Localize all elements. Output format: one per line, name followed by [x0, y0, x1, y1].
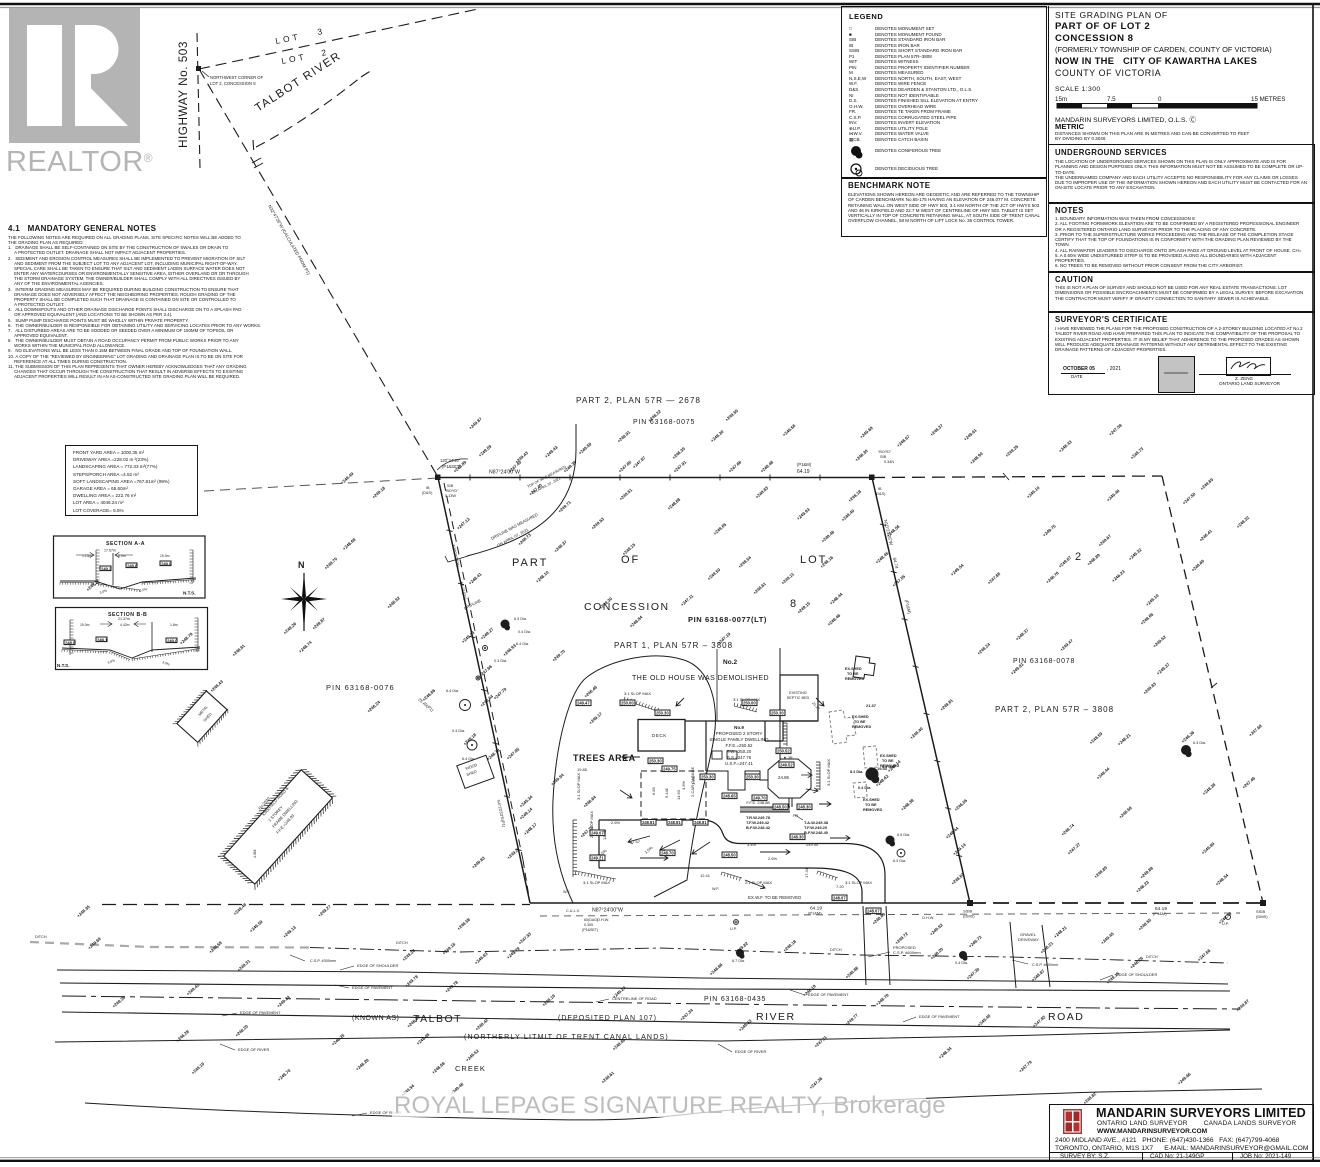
svg-text:+249.48: +249.48 — [977, 1013, 992, 1028]
svg-text:+249.59: +249.59 — [249, 919, 264, 934]
svg-text:6.9 Dia.: 6.9 Dia. — [897, 833, 910, 837]
svg-text:21.37: 21.37 — [811, 701, 820, 711]
svg-text:249.70: 249.70 — [753, 796, 766, 801]
svg-text:1.0%: 1.0% — [643, 845, 654, 855]
svg-text:249.9: 249.9 — [161, 562, 172, 567]
svg-text:250.30: 250.30 — [649, 759, 662, 764]
svg-text:+249.87: +249.87 — [311, 616, 326, 631]
svg-text:+249.88: +249.88 — [1139, 865, 1154, 880]
svg-text:+248.32: +248.32 — [1235, 515, 1250, 530]
svg-text:EDGE OF SHOULDER: EDGE OF SHOULDER — [357, 963, 398, 968]
svg-text:+249.87: +249.87 — [1057, 554, 1072, 569]
svg-text:+249.45: +249.45 — [1100, 931, 1115, 946]
svg-text:248.07: 248.07 — [833, 896, 846, 901]
svg-text:6.3 Dia.: 6.3 Dia. — [893, 859, 906, 863]
svg-text:15m: 15m — [1055, 96, 1067, 103]
svg-text:+247.87: +247.87 — [632, 455, 647, 470]
svg-text:4.42m: 4.42m — [120, 623, 130, 627]
svg-text:+247.13: +247.13 — [456, 516, 471, 531]
svg-text:+248.56: +248.56 — [1118, 805, 1133, 820]
svg-text:PIN 63168-0077(LT): PIN 63168-0077(LT) — [688, 615, 767, 624]
svg-text:+248.74: +248.74 — [1060, 822, 1075, 837]
svg-text:250.00: 250.00 — [621, 701, 634, 706]
svg-text:B.F.W.248.42: B.F.W.248.42 — [746, 825, 771, 830]
svg-text:+248.76: +248.76 — [1045, 570, 1060, 585]
svg-text:+248.79: +248.79 — [179, 631, 194, 646]
svg-text:+249.59: +249.59 — [477, 443, 492, 458]
svg-text:+249.69: +249.69 — [859, 425, 874, 440]
svg-text:3: 3 — [316, 26, 323, 37]
svg-text:0: 0 — [1158, 96, 1162, 103]
svg-text:248.50: 248.50 — [774, 805, 787, 810]
svg-text:+246.24: +246.24 — [366, 699, 381, 714]
svg-text:+248.38: +248.38 — [900, 797, 915, 812]
svg-text:+249.37: +249.37 — [1156, 661, 1171, 676]
svg-text:+249.53: +249.53 — [590, 516, 605, 531]
svg-text:248.70: 248.70 — [661, 851, 674, 856]
svg-text:+246.46: +246.46 — [583, 684, 598, 699]
svg-text:N4°23′33″E(P1): N4°23′33″E(P1) — [496, 799, 507, 828]
svg-text:EDGE OF PAVEMENT: EDGE OF PAVEMENT — [808, 992, 849, 997]
svg-text:8.4 Dia.: 8.4 Dia. — [850, 770, 863, 774]
svg-text:SHED: SHED — [466, 769, 478, 776]
svg-text:SINGLE FAMILY DWELLING: SINGLE FAMILY DWELLING — [709, 737, 769, 742]
svg-text:+247.85: +247.85 — [505, 746, 520, 761]
svg-text:B.F.W.248.40: B.F.W.248.40 — [804, 830, 829, 835]
svg-text:F.F.E.=250.52: F.F.E.=250.52 — [726, 743, 754, 748]
svg-text:+247.65: +247.65 — [617, 459, 632, 474]
svg-text:19.85: 19.85 — [577, 767, 588, 772]
svg-text:+248.59: +248.59 — [1088, 731, 1103, 746]
svg-text:+248.37: +248.37 — [553, 539, 568, 554]
svg-text:REMOVED: REMOVED — [852, 725, 871, 729]
svg-text:+248.38: +248.38 — [1201, 782, 1216, 797]
svg-text:+246.86: +246.86 — [421, 688, 436, 703]
svg-text:249.2: 249.2 — [101, 567, 112, 572]
svg-text:T.W.=250.20: T.W.=250.20 — [727, 749, 752, 754]
svg-text:IB: IB — [426, 486, 430, 490]
svg-text:3.0%: 3.0% — [99, 589, 108, 595]
svg-text:0.3 Dia.: 0.3 Dia. — [494, 659, 507, 663]
svg-text:2:1 SLOP MAX: 2:1 SLOP MAX — [745, 880, 772, 885]
svg-text:+248.10: +248.10 — [535, 569, 550, 584]
svg-text:DECK: DECK — [652, 733, 667, 738]
svg-text:No.9: No.9 — [734, 725, 744, 730]
svg-text:+249.27: +249.27 — [317, 903, 332, 918]
svg-text:4.5M: 4.5M — [253, 850, 257, 858]
svg-text:250.30: 250.30 — [701, 775, 714, 780]
svg-text:+247.46: +247.46 — [1241, 775, 1256, 790]
svg-text:249.1: 249.1 — [97, 638, 108, 643]
svg-text:3.4%: 3.4% — [747, 842, 757, 847]
svg-text:EX.SHED: EX.SHED — [863, 798, 880, 802]
svg-text:C.S.P. #600mm: C.S.P. #600mm — [893, 950, 921, 955]
svg-text:CREEK: CREEK — [455, 1064, 486, 1073]
svg-text:0.4 Dia.: 0.4 Dia. — [452, 729, 465, 733]
svg-text:+246.21: +246.21 — [1039, 940, 1054, 955]
svg-text:PART 2, PLAN 57R –: PART 2, PLAN 57R – 3808 — [995, 705, 1114, 714]
svg-text:249.0: 249.0 — [167, 639, 178, 644]
svg-text:+248.54: +248.54 — [737, 555, 752, 570]
svg-text:+248.89: +248.89 — [1086, 552, 1101, 567]
svg-text:(D&S): (D&S) — [422, 491, 433, 495]
svg-text:+249.53: +249.53 — [738, 1018, 753, 1033]
svg-text:+248.48: +248.48 — [232, 902, 247, 917]
svg-text:+247.79: +247.79 — [492, 686, 507, 701]
svg-text:+248.44: +248.44 — [829, 591, 844, 606]
svg-text:PROPOSED 2 STORY: PROPOSED 2 STORY — [716, 731, 763, 736]
svg-text:+248.83: +248.83 — [754, 485, 769, 500]
svg-text:U.S.F.=247.41: U.S.F.=247.41 — [725, 761, 754, 766]
svg-text:249.52: 249.52 — [780, 763, 793, 768]
svg-text:+247.68: +247.68 — [1248, 723, 1263, 738]
svg-text:+248.26: +248.26 — [282, 621, 297, 636]
svg-text:+247.79: +247.79 — [1018, 1059, 1033, 1074]
svg-text:+249.25: +249.25 — [1004, 444, 1019, 459]
svg-text:+249.70: +249.70 — [277, 1067, 292, 1082]
svg-text:15.0m: 15.0m — [160, 554, 170, 558]
svg-text:0.305: 0.305 — [584, 923, 593, 927]
svg-text:17.67m: 17.67m — [104, 549, 116, 553]
svg-text:1.8m: 1.8m — [170, 623, 178, 627]
svg-text:+248.64: +248.64 — [582, 794, 597, 809]
svg-text:EDGE OF PAVEMENT: EDGE OF PAVEMENT — [919, 1014, 960, 1019]
svg-text:+249.79: +249.79 — [506, 945, 521, 960]
svg-text:248.50: 248.50 — [723, 853, 736, 858]
svg-text:+247.58: +247.58 — [1108, 422, 1123, 437]
svg-text:+247.66: +247.66 — [727, 459, 742, 474]
svg-text:+248.90: +248.90 — [969, 451, 984, 466]
svg-text:N4°02′33″W: N4°02′33″W — [451, 544, 461, 567]
svg-text:+248.42: +248.42 — [474, 1017, 489, 1032]
svg-text:3:1 SLOP MAX: 3:1 SLOP MAX — [576, 773, 581, 800]
svg-text:+247.91: +247.91 — [672, 459, 687, 474]
svg-text:+248.78: +248.78 — [875, 992, 890, 1007]
svg-text:+248.24: +248.24 — [976, 641, 991, 656]
svg-text:W.F.: W.F. — [712, 887, 719, 891]
svg-text:+248.55: +248.55 — [1137, 917, 1152, 932]
svg-text:+249.50: +249.50 — [706, 567, 721, 582]
svg-text:DITCH: DITCH — [35, 935, 47, 939]
svg-text:248.8: 248.8 — [65, 641, 76, 646]
svg-text:+248.68: +248.68 — [666, 496, 681, 511]
svg-text:+249.10: +249.10 — [1026, 485, 1041, 500]
svg-text:+248.48: +248.48 — [759, 459, 774, 474]
svg-text:+249.15: +249.15 — [796, 600, 811, 615]
svg-text:+247.36: +247.36 — [808, 1076, 823, 1091]
svg-text:12.41: 12.41 — [602, 829, 607, 840]
svg-text:+249.69: +249.69 — [1199, 477, 1214, 492]
svg-text:+248.45: +248.45 — [874, 550, 889, 565]
svg-text:6.4 Dia.: 6.4 Dia. — [516, 642, 529, 646]
svg-text:+249.81: +249.81 — [939, 697, 954, 712]
svg-text:PART: PART — [512, 557, 548, 569]
svg-text:TO BE: TO BE — [882, 759, 894, 763]
svg-text:TALBOT: TALBOT — [413, 1013, 462, 1025]
svg-text:+249.38: +249.38 — [401, 948, 416, 963]
svg-text:TO BE: TO BE — [865, 803, 877, 807]
svg-text:LOT: LOT — [280, 51, 307, 66]
svg-text:+249.47: +249.47 — [1059, 638, 1074, 653]
svg-text:U.P.: U.P. — [730, 927, 737, 931]
svg-text:+249.87: +249.87 — [1235, 998, 1250, 1013]
svg-text:CONCESSION: CONCESSION — [584, 601, 670, 613]
svg-text:SIB: SIB — [447, 484, 454, 488]
svg-text:PART 1, PLAN 57R – 38: PART 1, PLAN 57R – 3808 — [614, 641, 733, 650]
svg-text:+246.23: +246.23 — [1111, 569, 1126, 584]
svg-text:+248.91: +248.91 — [616, 429, 631, 444]
svg-text:PART 2, PLAN 57R —: PART 2, PLAN 57R — 2678 — [576, 396, 701, 405]
svg-text:+246.55: +246.55 — [953, 798, 968, 813]
svg-text:+249.94: +249.94 — [550, 772, 565, 787]
svg-text:+249.61: +249.61 — [963, 427, 978, 442]
svg-text:(P1&M): (P1&M) — [797, 462, 812, 467]
svg-text:+246.83: +246.83 — [474, 951, 489, 966]
svg-text:+249.40: +249.40 — [1106, 488, 1121, 503]
svg-text:“BOYD”: “BOYD” — [878, 450, 892, 454]
svg-text:(NORTHERLY LITMIT OF: (NORTHERLY LITMIT OF TRENT CANAL LANDS) — [464, 1034, 669, 1041]
svg-text:+247.68: +247.68 — [986, 571, 1001, 586]
svg-text:+248.20: +248.20 — [234, 1023, 249, 1038]
svg-text:248.65: 248.65 — [723, 794, 736, 799]
svg-text:64.19: 64.19 — [797, 469, 810, 475]
svg-text:EDGE OF RIVER: EDGE OF RIVER — [238, 1047, 269, 1052]
svg-text:+248.43: +248.43 — [1058, 439, 1073, 454]
svg-text:C.S.P. #300mm: C.S.P. #300mm — [310, 959, 336, 963]
svg-text:+247.55: +247.55 — [891, 573, 906, 588]
svg-text:+247.27: +247.27 — [1066, 841, 1081, 856]
svg-text:21.37m: 21.37m — [118, 617, 130, 621]
svg-text:+248.67: +248.67 — [896, 434, 911, 449]
svg-text:+249.59: +249.59 — [577, 441, 592, 456]
svg-text:N: N — [298, 560, 305, 570]
svg-text:"BOYD": "BOYD" — [445, 489, 459, 493]
svg-text:3.0%: 3.0% — [107, 658, 116, 665]
svg-text:+249.15: +249.15 — [1105, 970, 1120, 985]
svg-text:DRIPLINE: DRIPLINE — [463, 598, 482, 611]
svg-text:+248.73: +248.73 — [1129, 446, 1144, 461]
svg-text:+248.61: +248.61 — [600, 1070, 615, 1085]
svg-text:N87°24′00″W: N87°24′00″W — [489, 470, 520, 476]
svg-text:17.57: 17.57 — [630, 839, 641, 844]
svg-text:6.4 Dia.: 6.4 Dia. — [446, 689, 459, 693]
svg-text:N.T.S.: N.T.S. — [183, 591, 196, 596]
svg-text:9.14£: 9.14£ — [664, 787, 669, 798]
svg-text:12.41: 12.41 — [700, 873, 711, 878]
svg-text:+246.73: +246.73 — [968, 934, 983, 949]
svg-text:0.4 Dia.: 0.4 Dia. — [518, 630, 531, 634]
svg-text:+246.93: +246.93 — [502, 643, 517, 658]
svg-text:+247.34: +247.34 — [679, 1007, 694, 1022]
svg-text:SIB: SIB — [880, 455, 887, 459]
svg-text:EDGE OF SHOULDER: EDGE OF SHOULDER — [1116, 972, 1157, 977]
svg-text:+249.46: +249.46 — [820, 529, 835, 544]
svg-text:HIGHWAY No. 503: HIGHWAY No. 503 — [176, 41, 190, 148]
svg-text:248.81: 248.81 — [668, 820, 681, 825]
svg-text:250.30: 250.30 — [656, 711, 669, 716]
svg-text:248.07: 248.07 — [867, 909, 880, 914]
svg-text:+246.23: +246.23 — [1135, 879, 1150, 894]
svg-text:+247.11: +247.11 — [680, 593, 695, 607]
svg-text:PIN 63168-0435: PIN 63168-0435 — [704, 996, 766, 1003]
svg-text:+247.11: +247.11 — [813, 1034, 828, 1048]
svg-text:+248.40: +248.40 — [909, 726, 924, 741]
svg-text:+249.58: +249.58 — [782, 423, 797, 438]
svg-text:3:1 SLOP MAX: 3:1 SLOP MAX — [845, 880, 872, 885]
svg-text:C.S.P. #600mm: C.S.P. #600mm — [1032, 963, 1058, 967]
svg-text:(DEPOSITED PLAN 107): (DEPOSITED PLAN 107) — [558, 1015, 657, 1022]
svg-text:EDGE OF PAVEMENT: EDGE OF PAVEMENT — [352, 985, 393, 990]
svg-text:SECTION A-A: SECTION A-A — [106, 541, 145, 547]
svg-text:3.0%: 3.0% — [162, 660, 171, 666]
svg-text:+246.39: +246.39 — [671, 446, 686, 461]
svg-text:SEPTIC BED: SEPTIC BED — [787, 696, 810, 700]
svg-text:+248.17: +248.17 — [523, 821, 538, 836]
svg-text:7.5: 7.5 — [1107, 96, 1116, 103]
svg-text:+248.37: +248.37 — [1015, 627, 1030, 642]
svg-text:2.6%: 2.6% — [611, 820, 621, 825]
svg-text:EX.SHED: EX.SHED — [880, 754, 897, 758]
svg-text:C.U.L.V.: C.U.L.V. — [566, 909, 580, 913]
svg-text:RIVER: RIVER — [756, 1011, 796, 1023]
svg-text:+248.35: +248.35 — [76, 904, 91, 919]
svg-text:250.00: 250.00 — [743, 701, 756, 706]
svg-text:249.50: 249.50 — [806, 842, 819, 847]
svg-text:REMOVED: REMOVED — [863, 808, 882, 812]
svg-text:0.34N: 0.34N — [884, 460, 894, 464]
svg-text:15 METRES: 15 METRES — [1251, 96, 1285, 103]
svg-text:DITCH: DITCH — [830, 948, 842, 952]
svg-text:DRIVEWAY: DRIVEWAY — [1018, 937, 1039, 942]
svg-text:+246.28: +246.28 — [175, 1029, 190, 1044]
svg-text:+246.41: +246.41 — [1198, 528, 1213, 543]
svg-text:(P1&SET): (P1&SET) — [582, 928, 598, 932]
svg-text:(DMS): (DMS) — [1256, 914, 1268, 919]
svg-text:+249.65: +249.65 — [712, 521, 727, 536]
svg-text:4.5%: 4.5% — [681, 780, 686, 790]
svg-text:+249.34: +249.34 — [518, 794, 533, 809]
svg-text:+248.74: +248.74 — [298, 639, 313, 654]
svg-text:+248.61: +248.61 — [231, 643, 246, 658]
svg-text:248.81: 248.81 — [694, 820, 707, 825]
svg-text:CENTRELINE OF ROAD: CENTRELINE OF ROAD — [612, 996, 657, 1001]
svg-text:O.H.W.: O.H.W. — [922, 916, 934, 920]
svg-text:+248.27: +248.27 — [479, 626, 494, 641]
svg-text:+248.21: +248.21 — [1053, 924, 1068, 939]
svg-text:8: 8 — [790, 598, 796, 610]
svg-text:250.52: 250.52 — [777, 749, 790, 754]
svg-text:+249.16: +249.16 — [441, 941, 456, 956]
svg-text:+249.11: +249.11 — [780, 571, 795, 585]
svg-text:+248.25: +248.25 — [331, 1032, 346, 1047]
svg-text:REMOVED: REMOVED — [845, 677, 864, 681]
svg-text:6.3 Dia.: 6.3 Dia. — [1193, 741, 1206, 745]
svg-text:+248.61: +248.61 — [752, 581, 767, 596]
svg-text:+248.45: +248.45 — [416, 1032, 431, 1047]
svg-text:EX.SHED: EX.SHED — [852, 715, 869, 719]
svg-text:▼ 3R: ▼ 3R — [783, 756, 793, 760]
svg-text:3:1 SLOP MAX: 3:1 SLOP MAX — [826, 759, 831, 786]
svg-text:249.75: 249.75 — [663, 767, 676, 772]
svg-text:+249.67: +249.67 — [1097, 533, 1112, 548]
svg-text:+249.80: +249.80 — [1201, 841, 1216, 856]
svg-text:248.30: 248.30 — [791, 835, 804, 840]
svg-text:250.30: 250.30 — [746, 775, 759, 780]
svg-text:LOT 2, CONCESSION 8: LOT 2, CONCESSION 8 — [210, 81, 256, 86]
svg-text:DITCH: DITCH — [396, 941, 408, 945]
svg-text:+248.44: +248.44 — [1095, 766, 1110, 781]
svg-text:+249.66: +249.66 — [1177, 1071, 1192, 1086]
svg-text:+249.10: +249.10 — [1145, 593, 1160, 608]
svg-text:2.0%: 2.0% — [139, 587, 148, 593]
svg-text:6.7 Dia.: 6.7 Dia. — [732, 959, 745, 963]
svg-text:+248.20: +248.20 — [929, 946, 944, 961]
svg-text:+248.18: +248.18 — [782, 938, 797, 953]
svg-text:60(DAG): 60(DAG) — [584, 918, 598, 922]
svg-text:+248.30: +248.30 — [710, 429, 725, 444]
svg-text:+249.83: +249.83 — [471, 855, 486, 870]
svg-text:+249.17: +249.17 — [588, 711, 603, 726]
svg-text:+248.68: +248.68 — [431, 1060, 446, 1075]
svg-text:NORTHWEST CORNER OF: NORTHWEST CORNER OF — [210, 75, 264, 80]
svg-text:+248.41: +248.41 — [468, 571, 483, 586]
svg-text:+248.58: +248.58 — [456, 917, 471, 932]
svg-text:+248.26: +248.26 — [1129, 955, 1144, 970]
svg-text:WOOD: WOOD — [465, 763, 478, 771]
svg-text:+248.92: +248.92 — [386, 595, 401, 610]
svg-text:+248.34: +248.34 — [938, 1045, 953, 1060]
svg-text:+249.19: +249.19 — [190, 1061, 205, 1076]
svg-text:2: 2 — [1075, 551, 1081, 563]
svg-text:+248.46: +248.46 — [826, 612, 841, 627]
svg-text:TO BE: TO BE — [847, 672, 859, 676]
svg-text:(KNOWN AS): (KNOWN AS) — [352, 1015, 399, 1022]
svg-text:21.37: 21.37 — [866, 703, 877, 708]
svg-text:7.20: 7.20 — [836, 884, 845, 889]
svg-text:+248.84: +248.84 — [628, 614, 643, 629]
svg-text:+247.83: +247.83 — [1032, 1014, 1047, 1029]
svg-text:1.5%: 1.5% — [691, 775, 696, 785]
svg-text:+248.86: +248.86 — [709, 962, 724, 977]
svg-text:6.83: 6.83 — [651, 786, 656, 795]
svg-text:+249.93: +249.93 — [796, 507, 811, 522]
svg-text:+247.50: +247.50 — [1181, 491, 1196, 506]
svg-text:+248.89: +248.89 — [1093, 865, 1108, 880]
svg-text:+249.92: +249.92 — [929, 922, 944, 937]
svg-text:3:1 SLOP MAX: 3:1 SLOP MAX — [583, 880, 610, 885]
svg-text:+246.30: +246.30 — [854, 448, 869, 463]
svg-text:TO BE: TO BE — [854, 720, 866, 724]
svg-text:N87°24′00″W: N87°24′00″W — [592, 908, 623, 914]
svg-text:+248.68: +248.68 — [342, 537, 357, 552]
svg-text:EX.SHED: EX.SHED — [845, 667, 862, 671]
svg-text:N.T.S.: N.T.S. — [57, 663, 70, 668]
svg-text:+248.37: +248.37 — [929, 423, 944, 438]
svg-text:EX.W.F. TO BE REMOVED: EX.W.F. TO BE REMOVED — [748, 895, 801, 900]
svg-text:+249.75: +249.75 — [1042, 523, 1057, 538]
svg-text:+249.50: +249.50 — [724, 408, 739, 423]
svg-text:O.H.W.: O.H.W. — [597, 918, 609, 922]
svg-text:+249.32: +249.32 — [1128, 547, 1143, 562]
svg-text:120°24′46″: 120°24′46″ — [440, 458, 461, 463]
svg-text:+249.69: +249.69 — [87, 936, 102, 951]
svg-text:+249.70: +249.70 — [551, 648, 566, 663]
svg-text:THE OLD HOUSE WAS DEMOLISH: THE OLD HOUSE WAS DEMOLISHED — [632, 675, 769, 682]
svg-text:+248.65: +248.65 — [1139, 611, 1154, 626]
svg-text:+248.28: +248.28 — [355, 1057, 370, 1072]
svg-text:+249.18: +249.18 — [371, 485, 386, 500]
svg-text:+249.54: +249.54 — [950, 562, 965, 577]
